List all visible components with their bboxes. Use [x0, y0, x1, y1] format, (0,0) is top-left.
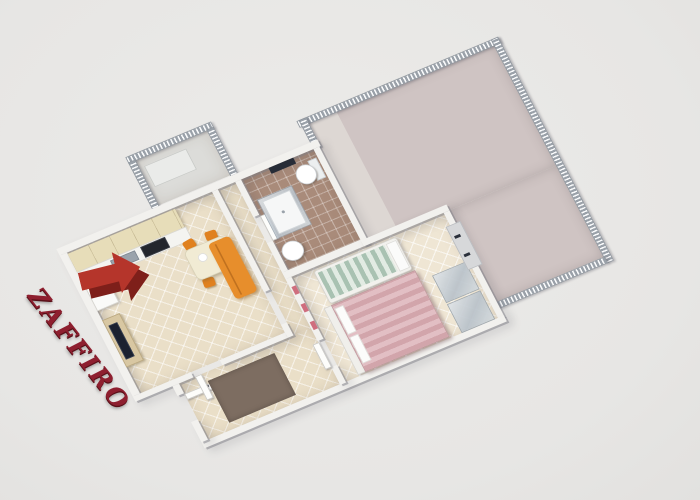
render-background: ZAFFIRO	[0, 0, 700, 500]
